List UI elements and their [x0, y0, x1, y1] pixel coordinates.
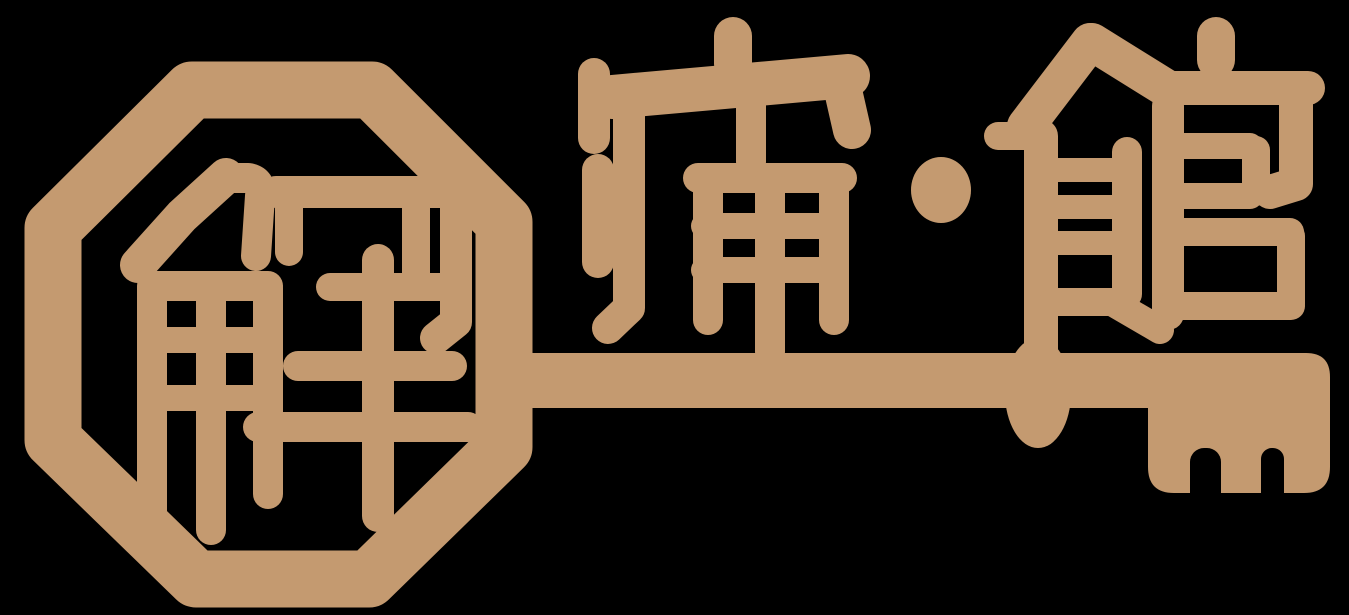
- jie-top-hook: [230, 178, 260, 256]
- logo-canvas: [0, 0, 1349, 615]
- glyph-tong: [594, 36, 852, 352]
- logo: 解 痛 · 館: [0, 0, 1349, 615]
- glyph-jie: [138, 176, 468, 530]
- key-shaft: [500, 353, 1200, 408]
- key-notch-2: [1261, 448, 1284, 520]
- jie-right-hook: [436, 196, 456, 338]
- tong-top-wedge: [842, 86, 852, 130]
- key-bit: [1148, 353, 1330, 493]
- guan-gong-right-hook: [1270, 92, 1296, 192]
- separator-dot: [911, 157, 971, 223]
- guan-shi-foot: [1053, 302, 1160, 330]
- key-notch-1: [1190, 448, 1221, 520]
- jie-top-diagonal: [138, 176, 226, 265]
- tong-top-bar: [612, 76, 848, 97]
